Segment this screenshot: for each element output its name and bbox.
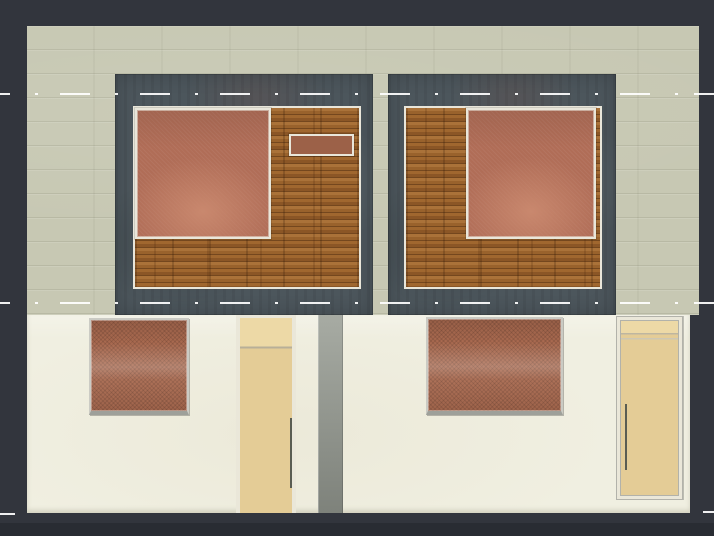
upper-window-right[interactable]	[466, 108, 596, 239]
window-unit-left	[133, 106, 361, 289]
entry-door-right[interactable]	[616, 316, 683, 500]
centerline-upper[interactable]	[0, 93, 714, 95]
window-panel-left[interactable]	[115, 74, 373, 315]
ground-line-dash-left[interactable]	[0, 513, 15, 515]
door-handle-left	[290, 418, 292, 488]
door-handle-right	[625, 404, 627, 470]
centerline-lower[interactable]	[0, 302, 714, 304]
entry-door-left[interactable]	[236, 315, 296, 513]
ground-line-dash-right[interactable]	[703, 511, 714, 513]
window-unit-right	[404, 106, 602, 289]
door-leaf-right	[620, 320, 679, 496]
lower-window-right[interactable]	[426, 317, 563, 415]
cad-viewport[interactable]	[0, 0, 714, 536]
window-panel-right[interactable]	[388, 74, 616, 315]
lower-window-left[interactable]	[89, 318, 189, 415]
door-leaf-left	[240, 318, 292, 513]
transom-slot[interactable]	[289, 134, 354, 156]
upper-window-left[interactable]	[135, 108, 271, 239]
recessed-pier[interactable]	[318, 315, 343, 513]
background-bottom-shade	[0, 523, 714, 536]
